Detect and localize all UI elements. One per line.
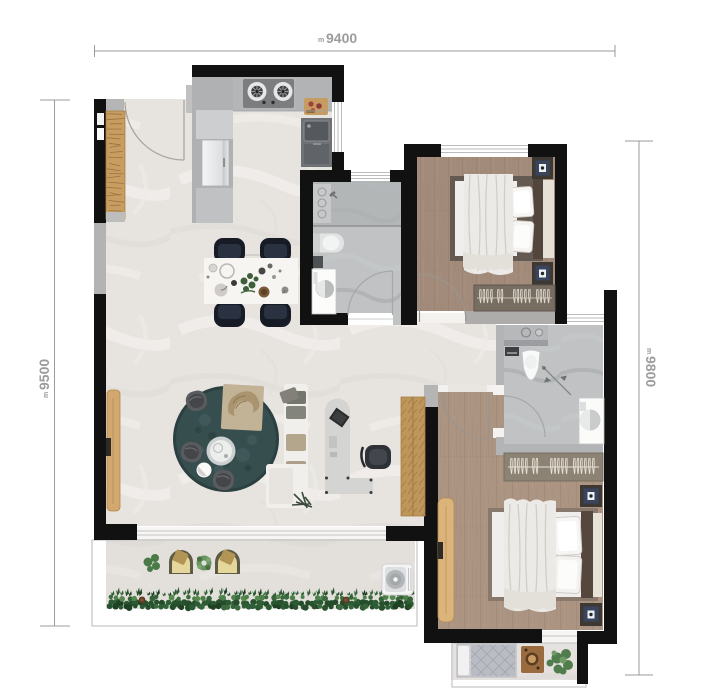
svg-text:m: m — [43, 392, 50, 398]
svg-text:m: m — [318, 37, 324, 44]
svg-text:m: m — [645, 348, 652, 354]
svg-text:9500: 9500 — [36, 359, 52, 390]
svg-text:9400: 9400 — [326, 30, 357, 46]
svg-text:9800: 9800 — [643, 356, 659, 387]
